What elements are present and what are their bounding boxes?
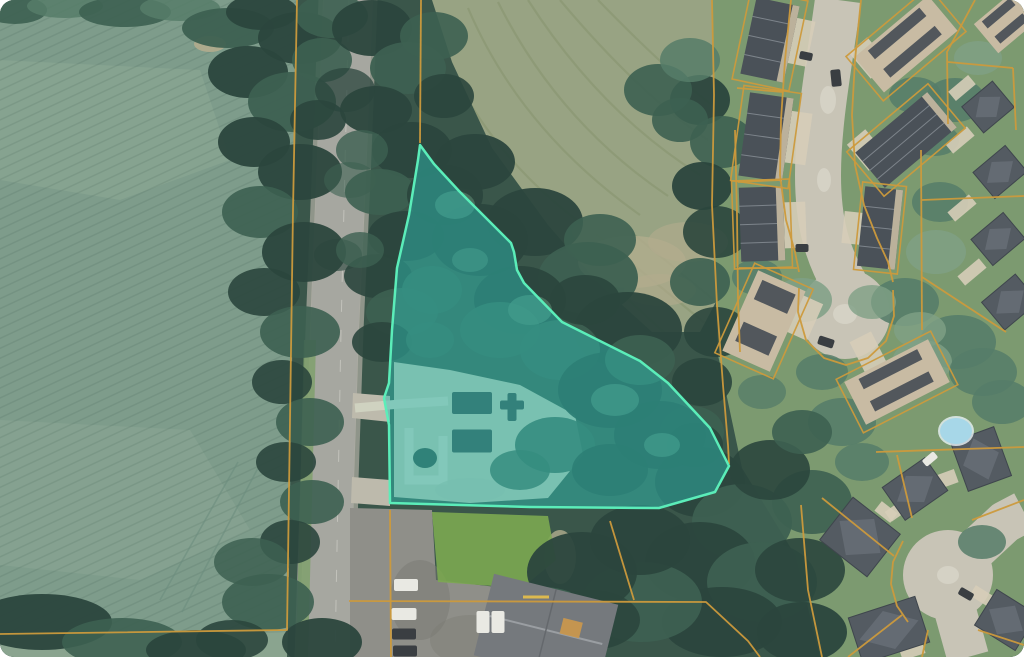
tree-canopy: [906, 230, 966, 274]
road-glare: [817, 168, 831, 192]
tree-canopy: [590, 505, 690, 575]
road-glare: [937, 566, 959, 584]
driveway-apron: [351, 477, 390, 506]
car: [394, 579, 418, 591]
residential-road: [818, 0, 845, 285]
tree-canopy: [414, 74, 474, 118]
car: [830, 69, 842, 87]
aerial-map-canvas[interactable]: [0, 0, 1024, 657]
car: [392, 608, 417, 620]
tree-canopy: [336, 232, 384, 268]
tree-canopy: [252, 360, 312, 404]
parcel-boundary-line: [390, 510, 391, 657]
tree-canopy: [796, 354, 848, 390]
parcel-boundary-line: [921, 150, 922, 330]
car: [392, 629, 416, 640]
tree-canopy: [336, 130, 388, 170]
tree-canopy: [670, 258, 730, 306]
car: [492, 611, 505, 633]
tree-canopy: [660, 38, 720, 82]
tree-canopy: [260, 306, 340, 358]
tree-canopy: [772, 410, 832, 454]
car: [477, 611, 490, 633]
tree-canopy: [848, 285, 896, 319]
residential-road: [950, 592, 968, 657]
tree-canopy: [256, 442, 316, 482]
townhouse-building: [739, 186, 786, 261]
tree-canopy: [683, 206, 749, 258]
tree-canopy: [345, 169, 415, 215]
tree-canopy: [550, 275, 620, 325]
aerial-map-view[interactable]: [0, 0, 1024, 657]
tree-canopy: [400, 12, 468, 60]
tree-canopy: [276, 398, 344, 446]
car: [393, 646, 417, 657]
car: [796, 244, 809, 252]
tree-canopy: [672, 162, 732, 210]
tree-canopy: [835, 443, 889, 481]
tree-canopy: [564, 214, 636, 266]
road-glare: [820, 86, 836, 114]
tree-canopy: [958, 525, 1006, 559]
parcel-boundary-line: [420, 0, 421, 143]
tree-canopy: [738, 375, 786, 409]
tree-canopy: [894, 312, 946, 348]
swimming-pool: [940, 418, 972, 444]
